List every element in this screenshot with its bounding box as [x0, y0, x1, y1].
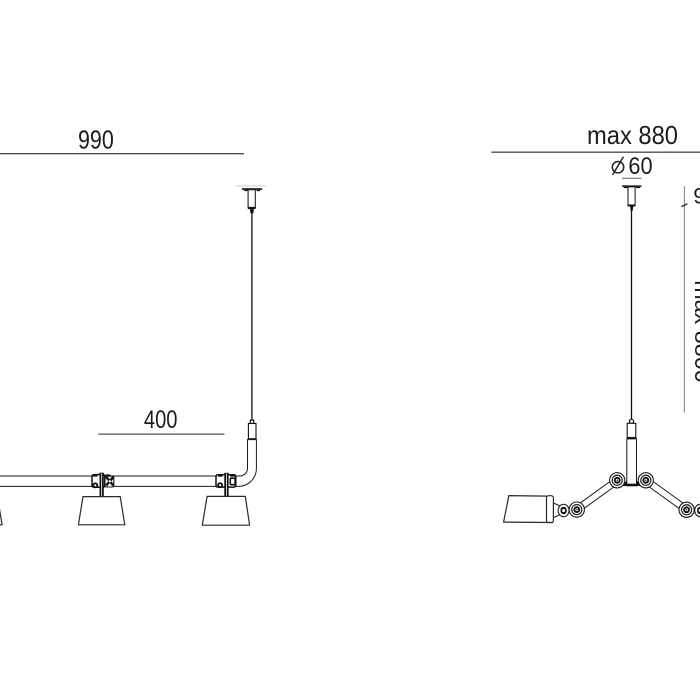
- svg-text:max 8800: max 8800: [690, 280, 700, 383]
- svg-text:max 880: max 880: [587, 120, 678, 150]
- svg-text:990: 990: [78, 127, 114, 155]
- svg-text:90: 90: [693, 184, 700, 209]
- svg-text:60: 60: [628, 153, 652, 180]
- svg-text:400: 400: [144, 406, 178, 434]
